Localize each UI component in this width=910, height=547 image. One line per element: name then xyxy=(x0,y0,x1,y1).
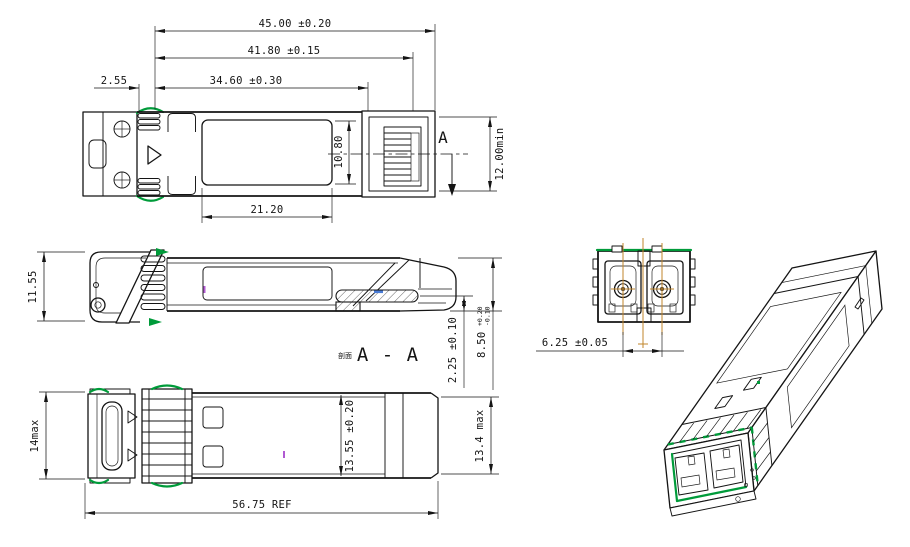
dim-cage-length: 34.60 ±0.30 xyxy=(210,75,283,87)
dim-housing-length: 41.80 ±0.15 xyxy=(248,45,321,57)
centerlines xyxy=(611,238,674,348)
fin-connector xyxy=(384,127,421,186)
label-recess-side xyxy=(203,267,332,300)
emi-fingers-bottom xyxy=(137,179,163,201)
dim-pcb-offset: 2.25 ±0.10 xyxy=(447,317,459,383)
green-accent xyxy=(149,318,162,326)
lc-port-right xyxy=(647,261,683,314)
orientation-triangle xyxy=(148,146,161,164)
dim-overall-length: 45.00 ±0.20 xyxy=(259,18,332,30)
section-arrow: A xyxy=(438,128,456,196)
green-accent xyxy=(156,248,169,256)
isometric-view xyxy=(664,251,882,516)
latch-bail xyxy=(90,248,169,326)
cage-tab-bottom xyxy=(168,176,196,195)
screw-icon xyxy=(114,121,130,137)
dim-width-max: 13.4 max xyxy=(474,410,486,463)
side-body xyxy=(167,258,456,311)
dim-body-height: 8.50 xyxy=(476,332,488,359)
purple-mark xyxy=(283,451,285,458)
bail-slot xyxy=(102,402,122,470)
dim-body-height-group: 8.50 +0.20 -0.10 xyxy=(476,306,492,358)
dim-latch-height: 11.55 xyxy=(27,270,39,303)
bottom-body xyxy=(192,393,438,478)
purple-mark xyxy=(204,286,206,293)
side-view-section: 剖面 A - A xyxy=(90,248,456,366)
mount-hole xyxy=(203,446,223,467)
section-label: 剖面 A - A xyxy=(338,344,419,366)
front-view xyxy=(593,238,695,348)
dim-body-width: 13.55 ±0.20 xyxy=(344,400,356,473)
section-title: A - A xyxy=(357,344,419,366)
dim-body-height-lower-tol: -0.10 xyxy=(484,306,492,326)
mount-hole xyxy=(203,407,223,428)
dim-lc-port-pitch: 6.25 ±0.05 xyxy=(542,337,608,349)
emi-ladder xyxy=(142,386,192,487)
sfp-transceiver-drawing: A 45.00 ±0.20 41.80 ±0.15 34.60 ±0.30 2.… xyxy=(0,0,910,547)
green-dot xyxy=(757,381,760,384)
center-key xyxy=(638,251,650,266)
bottom-view xyxy=(88,386,438,487)
dim-front-offset: 2.55 xyxy=(101,75,128,87)
screw-icon xyxy=(114,172,130,188)
dim-label-length: 21.20 xyxy=(250,204,283,216)
dim-overall-ref: 56.75 REF xyxy=(232,499,292,511)
bottom-view-dimensions: 14max 13.55 ±0.20 13.4 max 56.75 REF xyxy=(29,392,499,519)
engineering-drawing-canvas: A 45.00 ±0.20 41.80 ±0.15 34.60 ±0.30 2.… xyxy=(0,0,910,547)
label-recess xyxy=(202,120,332,185)
front-view-dimensions: 6.25 ±0.05 xyxy=(536,332,684,357)
section-prefix: 剖面 xyxy=(338,351,352,360)
dim-insertion-depth: 12.00min xyxy=(494,128,506,181)
hatched-step xyxy=(336,302,360,311)
section-letter: A xyxy=(438,128,448,147)
dim-label-width: 10.80 xyxy=(333,135,345,168)
latch-head xyxy=(88,389,135,483)
dim-latch-height-max: 14max xyxy=(29,419,41,452)
bottom-key xyxy=(637,308,651,322)
blue-mark xyxy=(374,291,383,294)
cage-tab-top xyxy=(168,114,196,133)
top-view: A xyxy=(83,108,468,201)
